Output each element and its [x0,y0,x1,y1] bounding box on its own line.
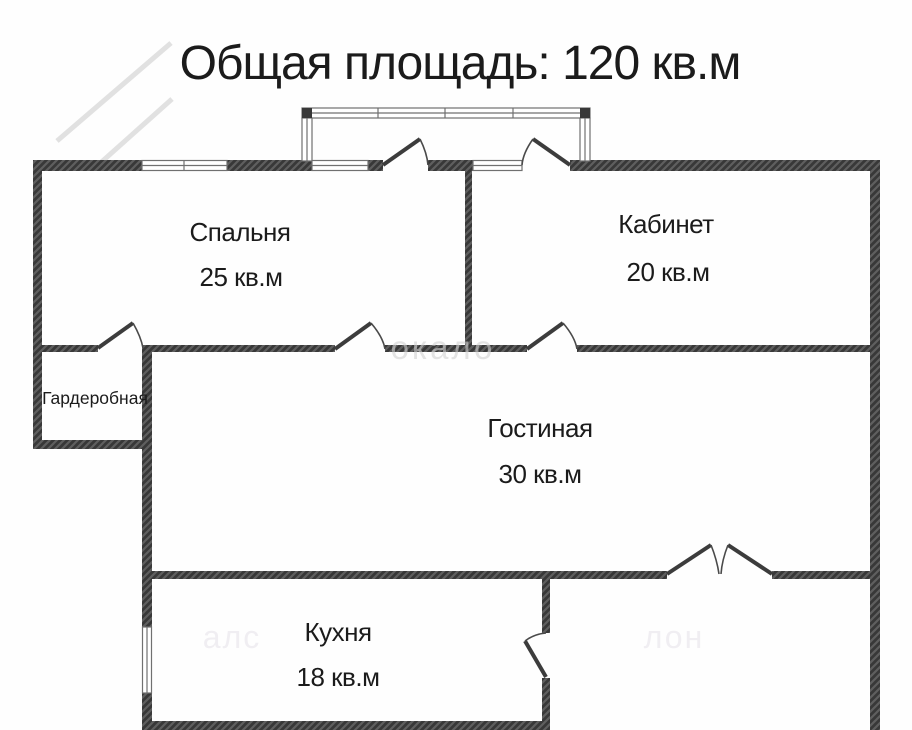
wall-top-3 [368,160,383,171]
door-arc-living-double-right [721,545,728,574]
walls [33,160,880,730]
wall-mid-4 [577,345,870,352]
living-name-label: Гостиная [487,413,592,443]
wall-bedroom-office-divider [465,171,472,345]
wall-mid-1 [40,345,98,352]
door-arc-wardrobe [133,323,143,348]
wall-top-4 [428,160,473,171]
wardrobe-name-label: Гардеробная [42,388,148,408]
wall-living-bottom-1 [142,571,667,579]
bedroom-name-label: Спальня [190,217,291,247]
wall-bottom [142,721,550,730]
kitchen-name-label: Кухня [304,617,371,647]
door-leaf-kitchen [525,641,546,677]
office-name-label: Кабинет [618,209,714,239]
wall-top-2 [227,160,312,171]
balcony [302,108,590,161]
door-leaf-living-double-left [667,545,711,574]
door-leaf-wardrobe [98,323,133,348]
wall-right [870,160,880,730]
wall-mid-2 [143,345,335,352]
door-arc-office [563,323,577,349]
door-leaf-bedroom [335,323,371,349]
door-leaf-balcony-bedroom [383,139,420,165]
door-arc-kitchen [525,633,546,641]
office-area-label: 20 кв.м [627,257,710,287]
balcony-corner-right [580,108,590,118]
bedroom-area-label: 25 кв.м [200,262,283,292]
door-arc-balcony-bedroom [420,139,428,165]
balcony-corner-left [302,108,312,118]
watermark-fragment-bottom-left: алс [203,619,261,655]
living-area-label: 30 кв.м [499,459,582,489]
wall-left [33,160,42,448]
watermark-logo-lines [57,43,172,166]
door-arc-balcony-office [522,139,533,165]
wall-top-1 [33,160,142,171]
door-leaf-living-double-right [728,545,772,574]
watermark-fragment-bottom-right: лон [644,619,705,655]
kitchen-area-label: 18 кв.м [297,662,380,692]
floor-plan: Общая площадь: 120 кв.м алс лон [0,0,912,730]
page-title: Общая площадь: 120 кв.м [180,37,741,90]
door-leaf-office [527,323,563,349]
wall-kitchen-right-1 [542,578,550,633]
wall-top-5 [570,160,880,171]
wall-living-bottom-2 [772,571,870,579]
door-arc-bedroom [371,323,385,349]
wall-kitchen-right-2 [542,678,550,730]
door-leaf-balcony-office [533,139,570,165]
watermark-fragment-mid: окало [391,329,496,366]
wall-wardrobe-bottom [33,440,152,449]
door-arc-living-double-left [711,545,719,574]
